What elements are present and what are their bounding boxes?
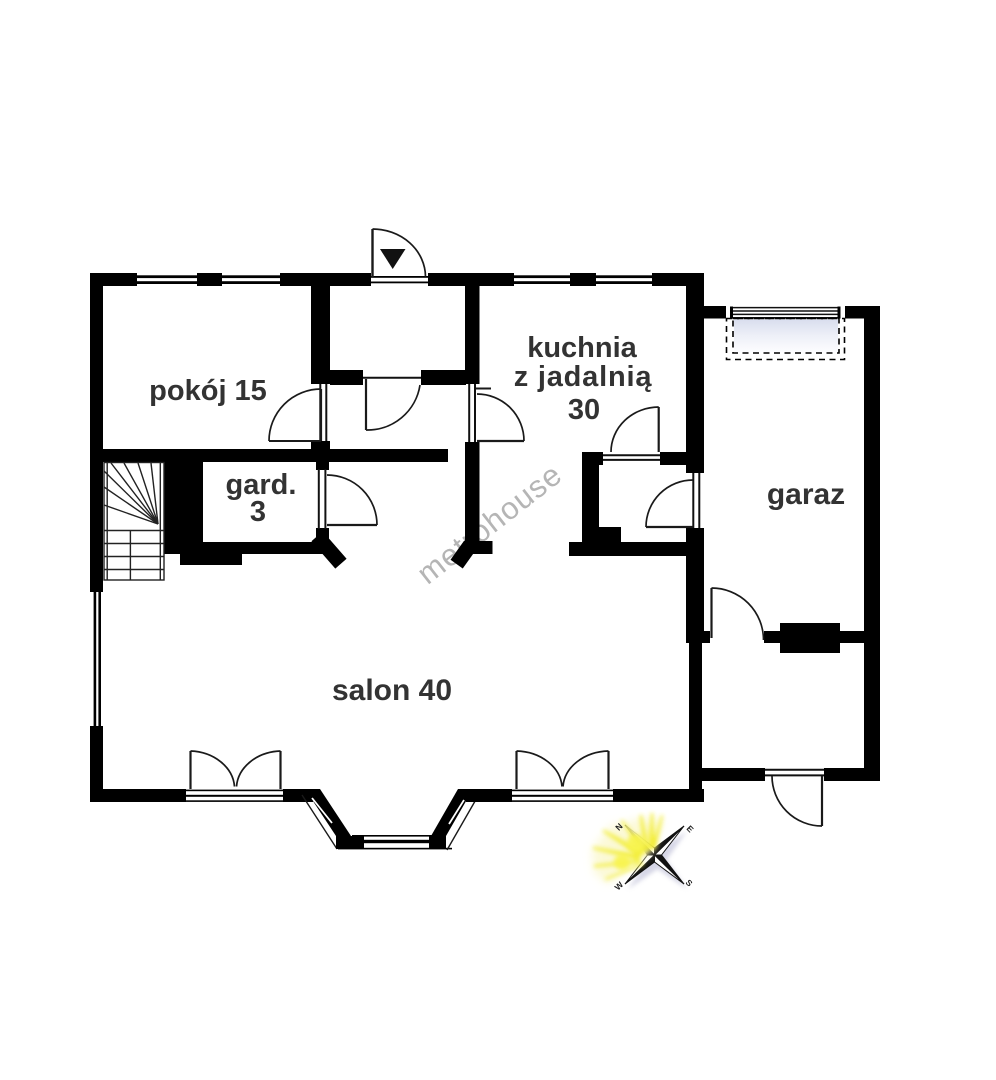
- svg-text:30: 30: [568, 394, 600, 426]
- svg-text:garaz: garaz: [767, 478, 845, 511]
- svg-text:z jadalnią: z jadalnią: [514, 361, 653, 393]
- svg-text:salon 40: salon 40: [332, 674, 452, 707]
- svg-text:kuchnia: kuchnia: [527, 332, 637, 364]
- svg-text:pokój 15: pokój 15: [149, 375, 267, 407]
- svg-text:3: 3: [250, 496, 266, 528]
